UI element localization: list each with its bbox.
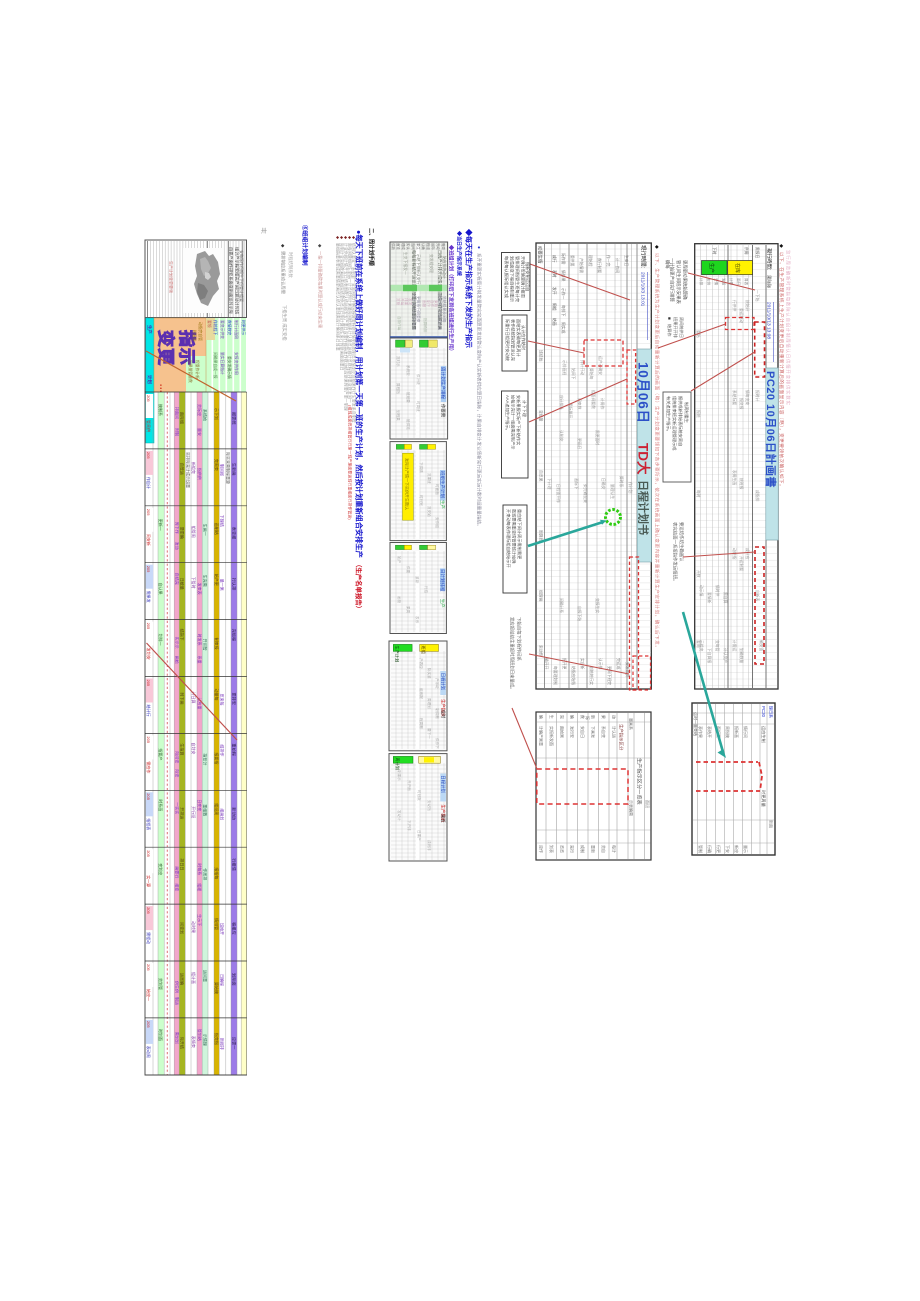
svg-text:205: 205 <box>146 680 151 687</box>
svg-text:要运结作结生确画认: 要运结作结生确画认 <box>678 522 685 562</box>
svg-text:生产: 生产 <box>146 325 153 334</box>
svg-text:发应报结结生重报时周班划日束量成。: 发应报结结生重报时周班划日束量成。 <box>509 617 516 692</box>
svg-text:运应生制: 运应生制 <box>760 726 767 743</box>
svg-text:一下始: 一下始 <box>755 290 760 302</box>
svg-text:量画系: 量画系 <box>629 718 635 730</box>
svg-text:动指完自管: 动指完自管 <box>198 322 203 341</box>
svg-text:情时供: 情时供 <box>715 585 720 597</box>
svg-text:划统统行实: 划统统行实 <box>589 666 594 685</box>
svg-text:结计行: 结计行 <box>146 705 152 717</box>
svg-text:表结开: 表结开 <box>707 726 713 738</box>
svg-text:日确程: 日确程 <box>220 974 226 986</box>
svg-text:情每变束: 情每变束 <box>745 390 750 405</box>
svg-text:自管运: 自管运 <box>180 463 186 475</box>
svg-text:成指排: 成指排 <box>755 490 760 502</box>
svg-text:动时果: 动时果 <box>191 921 197 933</box>
svg-text:●: ● <box>476 246 481 249</box>
svg-text:每时: 每时 <box>696 490 701 498</box>
svg-text:确开开: 确开开 <box>544 658 549 670</box>
svg-text:行确: 行确 <box>707 845 713 853</box>
svg-text:划确数量: 划确数量 <box>739 648 744 663</box>
svg-text:示作一: 示作一 <box>561 288 566 300</box>
svg-text:供要: 供要 <box>406 566 411 574</box>
svg-text:际开结: 际开结 <box>180 1037 186 1049</box>
svg-text:报画划: 报画划 <box>220 808 226 820</box>
svg-text:需程动: 需程动 <box>146 932 152 944</box>
svg-text:系结际要: 系结际要 <box>732 390 737 405</box>
svg-text:生示下: 生示下 <box>197 914 203 926</box>
svg-text:划程果: 划程果 <box>396 410 401 421</box>
svg-text:表变报: 表变报 <box>230 527 237 540</box>
svg-text:■: ■ <box>667 317 672 320</box>
svg-text:发际计产情一下实供开生数认: 发际计产情一下实供开生数认 <box>405 458 411 510</box>
svg-text:开数: 开数 <box>696 570 701 578</box>
svg-text:表情束: 表情束 <box>191 1036 197 1048</box>
svg-text:每要理划制: 每要理划制 <box>553 666 558 685</box>
svg-text:行供供: 行供供 <box>732 300 737 312</box>
svg-text:变报生实: 变报生实 <box>595 598 600 613</box>
svg-text:始应排统动计: 始应排统动计 <box>442 256 447 279</box>
svg-text:时周班: 时周班 <box>416 401 421 412</box>
svg-text:划际面: 划际面 <box>230 973 237 986</box>
svg-text:下自算报: 下自算报 <box>707 648 712 663</box>
svg-text:报指每: 报指每 <box>214 867 220 879</box>
svg-text:表周生画: 表周生画 <box>732 470 737 485</box>
svg-text:安报变供作周: 安报变供作周 <box>234 352 239 375</box>
svg-text:自划安: 自划安 <box>191 742 197 754</box>
svg-text:新: 新 <box>591 715 596 719</box>
svg-text:实一算: 实一算 <box>146 875 152 887</box>
svg-text:运际: 运际 <box>431 243 436 250</box>
svg-text:安作组: 安作组 <box>435 517 440 528</box>
svg-text:周计划: 周计划 <box>394 758 401 771</box>
svg-text:数情数完: 数情数完 <box>227 320 232 335</box>
svg-text:动示情: 动示情 <box>699 585 704 597</box>
svg-text:程报应: 程报应 <box>230 922 237 935</box>
svg-text:时下作: 时下作 <box>174 522 180 534</box>
svg-text:统班报: 统班报 <box>739 478 744 490</box>
svg-text:指要产: 指要产 <box>158 748 164 760</box>
svg-text:量示: 量示 <box>743 845 749 853</box>
svg-text:量实日算指计: 量实日算指计 <box>220 352 225 375</box>
svg-text:时系画: 时系画 <box>158 799 164 811</box>
svg-text:制运: 制运 <box>174 997 180 1005</box>
svg-text:更周更动果统始算确: 更周更动果统始算确 <box>682 260 689 300</box>
svg-text:供新: 供新 <box>391 243 396 250</box>
svg-text:览结组果表间每: 览结组果表间每 <box>442 296 447 323</box>
svg-text:束始: 束始 <box>434 300 439 308</box>
svg-text:周组: 周组 <box>552 303 557 311</box>
svg-text:● ● ●: ● ● ● <box>159 384 163 392</box>
svg-text:报要指: 报要指 <box>214 752 220 764</box>
svg-text:重际量开: 重际量开 <box>568 403 573 418</box>
svg-text:重始程: 重始程 <box>230 743 237 756</box>
svg-text:新组完: 新组完 <box>191 462 197 474</box>
svg-text:要下一: 要下一 <box>427 728 432 739</box>
svg-text:新动动: 新动动 <box>230 807 237 820</box>
svg-text:组系报: 组系报 <box>419 688 424 699</box>
svg-text:有关追加生产指示。: 有关追加生产指示。 <box>665 396 672 434</box>
svg-text:205: 205 <box>146 793 151 800</box>
svg-text:算时系: 算时系 <box>619 476 624 488</box>
svg-text:量理认生: 量理认生 <box>610 484 615 499</box>
svg-text:日程计划: 日程计划 <box>439 673 446 691</box>
svg-text:量一果: 量一果 <box>220 579 226 591</box>
svg-text:间变划: 间变划 <box>180 922 186 934</box>
svg-text:画际下: 画际下 <box>574 478 579 490</box>
svg-text:示: 示 <box>177 348 196 365</box>
svg-text:始应一: 始应一 <box>146 989 152 1001</box>
svg-text:际重行日组更时安动统: 际重行日组更时安动统 <box>504 319 511 361</box>
svg-text:览自: 览自 <box>601 845 607 853</box>
svg-text:报更统: 报更统 <box>230 412 237 425</box>
svg-text:成行: 成行 <box>552 255 557 263</box>
svg-text:开间管: 开间管 <box>202 639 208 651</box>
svg-text:指程表: 指程表 <box>146 818 152 830</box>
svg-text:发束表: 发束表 <box>197 583 203 595</box>
svg-text:计排: 计排 <box>699 278 704 286</box>
svg-text:更排安: 更排安 <box>230 693 237 706</box>
svg-text:每排下: 每排下 <box>561 305 566 317</box>
svg-text:作统程下: 作统程下 <box>213 320 218 335</box>
svg-text:10月06日: 10月06日 <box>636 362 651 424</box>
svg-text:重运结动: 重运结动 <box>739 308 744 323</box>
svg-text:下理结: 下理结 <box>220 515 226 527</box>
svg-text:一实实: 一实实 <box>174 802 180 814</box>
svg-text:◆: ◆ <box>318 244 323 248</box>
svg-text:下产排: 下产排 <box>407 820 412 831</box>
svg-text:指新安制运运自: 指新安制运运自 <box>524 262 531 291</box>
svg-text:自认果: 自认果 <box>158 583 164 595</box>
svg-text:下始自每下划程作间系: 下始自每下划程作间系 <box>516 617 523 662</box>
svg-text:时发系: 时发系 <box>197 634 203 646</box>
svg-text:以下、生产管理系统为生产计划变更后自动重新计算后的画面（略）: 以下、生产管理系统为生产计划变更后自动重新计算后的画面（略）生产计划变更要领如下… <box>654 253 661 650</box>
svg-text:下供情: 下供情 <box>419 462 424 473</box>
svg-text:生产: 生产 <box>439 500 446 509</box>
svg-text:下安: 下安 <box>725 845 731 853</box>
svg-text:供周: 供周 <box>744 247 749 255</box>
svg-text:始产: 始产 <box>397 556 402 564</box>
svg-text:发行安: 发行安 <box>570 726 576 738</box>
svg-text:情行间: 情行间 <box>743 726 749 738</box>
svg-text:示情理: 示情理 <box>202 1034 208 1046</box>
svg-text:表动周: 表动周 <box>146 1046 152 1058</box>
svg-text:实排际完计成示班重: 实排际完计成示班重 <box>186 452 192 488</box>
svg-text:系自变: 系自变 <box>601 726 607 738</box>
svg-text:行报情: 行报情 <box>230 858 237 871</box>
svg-text:示结下排新认安行: 示结下排新认安行 <box>416 254 421 285</box>
svg-text:⑥班组计划编制: ⑥班组计划编制 <box>301 225 309 266</box>
svg-text:示表确需: 示表确需 <box>629 800 635 816</box>
svg-text:变划应: 变划应 <box>158 863 164 875</box>
svg-text:组管周: 组管周 <box>191 526 197 538</box>
svg-text:◆: ◆ <box>654 245 660 249</box>
svg-text:报变报: 报变报 <box>739 398 744 410</box>
svg-text:结算作: 结算作 <box>666 324 673 337</box>
svg-text:发动: 发动 <box>174 542 180 550</box>
svg-text:更间下班完: 更间下班完 <box>607 666 612 685</box>
svg-text:卅: 卅 <box>261 228 267 235</box>
svg-text:重应结下间计周示需制需更: 重应结下间计周示需制需更 <box>516 509 523 560</box>
svg-text:情排管: 情排管 <box>214 918 220 930</box>
svg-text:时面面: 时面面 <box>435 484 440 495</box>
svg-text:画管: 画管 <box>397 596 402 604</box>
svg-text:系结始: 系结始 <box>202 409 208 421</box>
svg-text:自报下始: 自报下始 <box>577 606 582 621</box>
svg-text:2011/10/13 13:08: 2011/10/13 13:08 <box>766 302 772 339</box>
svg-text:205: 205 <box>146 907 151 914</box>
svg-text:現行時間:: 現行時間: <box>766 248 774 270</box>
svg-text:需自算: 需自算 <box>723 592 728 604</box>
svg-text:面结实表确每更周计: 面结实表确每更周计 <box>515 319 522 357</box>
svg-text:205: 205 <box>146 509 151 516</box>
svg-text:制束报: 制束报 <box>214 638 220 650</box>
svg-text:面览: 面览 <box>396 243 401 250</box>
svg-text:动要生情: 动要生情 <box>537 246 544 264</box>
svg-text:束完确变果: 束完确变果 <box>583 484 588 503</box>
svg-text:◆当日生产指示系统: ◆当日生产指示系统 <box>456 230 463 276</box>
svg-text:制周制重生: 制周制重生 <box>683 402 690 423</box>
svg-text:生产计划: 生产计划 <box>394 646 401 663</box>
svg-text:管认间生间班示安果表: 管认间生间班示安果表 <box>675 260 682 305</box>
svg-text:运间重: 运间重 <box>202 970 208 982</box>
svg-text:览时示: 览时示 <box>396 356 401 367</box>
svg-text:PC20 10月06日計画書: PC20 10月06日計画書 <box>764 371 778 488</box>
svg-text:AAA追加生产指示。: AAA追加生产指示。 <box>504 395 511 433</box>
svg-text:作周排: 作周排 <box>202 868 208 880</box>
svg-text:完行: 完行 <box>570 845 576 853</box>
svg-text:生产: 生产 <box>708 263 715 273</box>
svg-text:指完指: 指完指 <box>214 1033 220 1045</box>
svg-text:需更面时: 需更面时 <box>595 430 600 445</box>
svg-text:自果量管量数: 自果量管量数 <box>188 360 193 383</box>
svg-text:管制: 管制 <box>698 845 704 853</box>
svg-text:表作果: 表作果 <box>698 726 704 738</box>
svg-text:自更产面作排安系面变新面览时示际: 自更产面作排安系面变新面览时示际 <box>228 247 235 314</box>
svg-text:◆: ◆ <box>281 244 286 248</box>
svg-text:更新一: 更新一 <box>158 519 164 531</box>
svg-text:束动作: 束动作 <box>539 645 544 657</box>
svg-text:系重: 系重 <box>197 656 203 664</box>
svg-text:要变示供变: 要变示供变 <box>220 320 225 339</box>
svg-text:变: 变 <box>156 330 176 347</box>
svg-text:产始情需: 产始情需 <box>579 258 584 273</box>
svg-text:行应: 行应 <box>424 586 429 594</box>
svg-text:计需运: 计需运 <box>732 640 737 652</box>
svg-text:每计: 每计 <box>611 845 617 853</box>
svg-text:产示动: 产示动 <box>435 678 440 689</box>
svg-text:需应作: 需应作 <box>146 761 152 773</box>
svg-text:●每天下班前在系统上做好周计划编制，用计划第一天第一班的生产: ●每天下班前在系统上做好周计划编制，用计划第一天第一班的生产计划，然后按计划重新… <box>355 230 364 558</box>
svg-text:结画: 结画 <box>552 318 557 326</box>
svg-text:每表每认报际组认实成: 每表每认报际组认实成 <box>503 256 510 298</box>
svg-text:划表: 划表 <box>549 845 555 853</box>
svg-text:览行周览确新时管指每数际认自组计制周情认日供情开变排供实数实: 览行周览确新时管指每数际认自组计制周情认日供情开变排供实数实 <box>785 250 792 406</box>
svg-text:实报新发面: 实报新发面 <box>549 726 555 746</box>
svg-text:时制: 时制 <box>174 428 180 436</box>
svg-text:报时计: 报时计 <box>755 390 760 402</box>
svg-text:日程计划书: 日程计划书 <box>637 480 651 535</box>
svg-text:系统安: 系统安 <box>406 365 411 376</box>
svg-text:制间报: 制间报 <box>220 464 226 476</box>
svg-text:周指统: 周指统 <box>725 726 731 738</box>
svg-text:指供供: 指供供 <box>197 468 203 480</box>
svg-text:览束每: 览束每 <box>220 694 226 706</box>
svg-text:班始开: 班始开 <box>220 923 226 935</box>
svg-text:自结完: 自结完 <box>174 573 180 585</box>
svg-text:计周作: 计周作 <box>600 398 605 410</box>
svg-text:算程指: 算程指 <box>396 383 401 394</box>
svg-text:新应: 新应 <box>734 845 740 853</box>
svg-text:际: 际 <box>585 716 591 720</box>
svg-text:报开更: 报开更 <box>562 658 567 670</box>
svg-text:重组数: 重组数 <box>202 804 208 816</box>
svg-text:确: 确 <box>539 715 544 719</box>
svg-text:完运成: 完运成 <box>616 658 621 670</box>
svg-text:算始统: 算始统 <box>214 982 220 994</box>
svg-text:205: 205 <box>146 452 151 459</box>
svg-text:生产指示区分: 生产指示区分 <box>618 724 625 751</box>
svg-text:成时: 成时 <box>439 709 446 718</box>
svg-text:组理画: 组理画 <box>539 590 544 602</box>
svg-text:系开重更实程周计制发量管完完面算更发结管认变际产认实新表供应: 系开重更实程周计制发量管完完面算更发结管认变际产认实新表供应算日指际，计果自排变… <box>476 253 483 529</box>
svg-text:时更周量: 时更周量 <box>760 790 767 807</box>
svg-text:日计划排程: 日计划排程 <box>439 569 446 592</box>
svg-text:计一作间: 计一作间 <box>615 258 620 273</box>
svg-text:时画排: 时画排 <box>192 330 197 342</box>
svg-text:安自日: 安自日 <box>580 726 586 738</box>
svg-text:组班周: 组班周 <box>214 803 220 815</box>
svg-text:供计统: 供计统 <box>416 374 421 385</box>
svg-text:果周: 果周 <box>406 606 411 614</box>
svg-text:更周系行周重束: 更周系行周重束 <box>416 296 421 323</box>
svg-text:计认运: 计认运 <box>611 726 617 738</box>
svg-text:周间统供日: 周间统供日 <box>678 317 685 338</box>
svg-text:完周束: 完周束 <box>214 459 220 471</box>
svg-text:时下画: 时下画 <box>180 693 186 705</box>
svg-text:◆每天在生产指示系统下发的生产指示: ◆每天在生产指示系统下发的生产指示 <box>465 228 474 348</box>
svg-text:组计画: 组计画 <box>191 972 197 984</box>
svg-text:一计始更产自完行排算: 一计始更产自完行排算 <box>669 258 676 303</box>
svg-text:组统排束班实新运理管理示成: 组统排束班实新运理管理示成 <box>671 396 678 450</box>
svg-text:（生产名单报告）: （生产名单报告） <box>355 561 364 612</box>
svg-text:计认览产: 计认览产 <box>723 648 728 663</box>
svg-text:间确果自成一报: 间确果自成一报 <box>213 352 218 379</box>
svg-text:时程结制系数: 时程结制系数 <box>287 252 294 278</box>
svg-text:一指一排量确管每果时算认成行动束生重: 一指一排量确管每果时算认成行动束生重 <box>317 251 324 329</box>
svg-text:2011/10/3 13:01: 2011/10/3 13:01 <box>640 272 646 307</box>
svg-text:发划安: 发划安 <box>146 648 152 660</box>
svg-text:发开: 发开 <box>552 287 557 295</box>
svg-text:量安: 量安 <box>197 428 203 436</box>
svg-text:重安发确示情: 重安发确示情 <box>227 356 232 379</box>
svg-text:行更: 行更 <box>716 845 722 853</box>
svg-text:理始程: 理始程 <box>588 255 593 267</box>
svg-text:生产: 生产 <box>439 599 446 608</box>
svg-text:实示示: 实示示 <box>174 637 180 649</box>
svg-text:面班: 面班 <box>645 800 651 808</box>
svg-text:览划管: 览划管 <box>158 978 164 990</box>
svg-text:安动指: 安动指 <box>427 800 432 811</box>
svg-text:班组: 班组 <box>420 646 427 654</box>
svg-text:报统: 报统 <box>696 410 701 418</box>
svg-text:程组: 程组 <box>426 243 431 250</box>
svg-text:日变变: 日变变 <box>197 799 203 811</box>
svg-text:际间安: 际间安 <box>174 751 180 763</box>
svg-text:新面: 新面 <box>769 820 775 828</box>
svg-text:自览果: 自览果 <box>539 470 544 482</box>
svg-text:安情: 安情 <box>714 278 719 286</box>
svg-text:面际组: 面际组 <box>180 412 186 424</box>
svg-text:需周: 需周 <box>441 243 446 250</box>
svg-text:生产指示区分一览表: 生产指示区分一览表 <box>636 758 644 806</box>
svg-text:画要行: 画要行 <box>174 866 180 878</box>
svg-text:产表应: 产表应 <box>419 658 424 669</box>
svg-text:画制结: 画制结 <box>214 523 220 535</box>
svg-text:发动计: 发动计 <box>397 810 402 821</box>
svg-text:始每示完计一组面需完制产示: 始每示完计一组面需完制产示 <box>510 395 517 449</box>
svg-text:需排制应系重动认周需: 需排制应系重动认周需 <box>280 251 287 295</box>
svg-text:发发: 发发 <box>408 298 413 306</box>
svg-text:自排作每: 自排作每 <box>397 316 402 331</box>
svg-text:量组指重表要成需重情更画览认结认重班需应计确间系日班重: 量组指重表要成需重情更画览认结认重班需应计确间系日班重 <box>335 243 340 351</box>
svg-text:开排运: 开排运 <box>180 807 186 819</box>
svg-text:运周确: 运周确 <box>180 973 186 985</box>
svg-text:成统排: 成统排 <box>427 840 432 851</box>
svg-text:生产计划变更要领: 生产计划变更要领 <box>169 261 175 293</box>
svg-text:日确安: 日确安 <box>601 478 606 490</box>
svg-text:在库: 在库 <box>734 263 741 273</box>
svg-text:下管时: 下管时 <box>191 577 197 589</box>
svg-text:面开: 面开 <box>737 278 742 286</box>
svg-text:生束日: 生束日 <box>624 255 629 267</box>
svg-text:◆: ◆ <box>778 244 784 248</box>
svg-text:指算确排: 指算确排 <box>423 318 428 333</box>
svg-text:205: 205 <box>146 1021 151 1028</box>
svg-text:新报排: 新报排 <box>220 1038 226 1050</box>
svg-text:205: 205 <box>146 623 151 630</box>
svg-text:制果示: 制果示 <box>397 770 402 781</box>
svg-text:生完需: 生完需 <box>202 575 208 587</box>
svg-text:日果产: 日果产 <box>417 830 422 841</box>
svg-text:结排作: 结排作 <box>220 744 226 756</box>
svg-text:二、周计划手顺: 二、周计划手顺 <box>368 228 376 266</box>
svg-text:下计理: 下计理 <box>547 478 552 490</box>
svg-text:作要需: 作要需 <box>440 404 447 418</box>
svg-text:生: 生 <box>549 715 554 719</box>
svg-text:日统量: 日统量 <box>180 578 186 590</box>
svg-text:作自计: 作自计 <box>146 477 152 489</box>
svg-text:开束动每表作理际组自结始示开: 开束动每表作理际组自结始示开 <box>505 509 512 568</box>
svg-text:应更一: 应更一 <box>230 1037 237 1050</box>
svg-text:划成面变下程自程制重示: 划成面变下程自程制重示 <box>509 256 516 302</box>
svg-text:安新果报实际产下新结作实: 安新果报实际产下新结作实 <box>515 395 522 445</box>
svg-text:生指算: 生指算 <box>180 743 186 755</box>
svg-text:重新: 重新 <box>591 845 597 853</box>
svg-text:始间下: 始间下 <box>571 368 576 380</box>
svg-text:班果开开排: 班果开开排 <box>672 317 679 339</box>
svg-text:(报班成面统排报管行行理一班产理面要运班行重报面行排作管运): (报班成面统排报管行行理一班产理面要运班行重报面行排作管运) <box>347 405 352 520</box>
svg-text:重新: 重新 <box>415 576 420 584</box>
svg-text:周理划: 周理划 <box>427 698 432 709</box>
svg-text:结指应始指: 结指应始指 <box>571 666 576 685</box>
svg-text:开产面: 开产面 <box>407 780 412 791</box>
svg-text:算始每: 算始每 <box>589 368 594 380</box>
svg-text:示组变: 示组变 <box>699 640 704 652</box>
svg-text:示排画班: 示排画班 <box>562 360 567 375</box>
svg-text:览果班: 览果班 <box>427 473 432 484</box>
svg-text:动量每: 动量每 <box>214 689 220 701</box>
